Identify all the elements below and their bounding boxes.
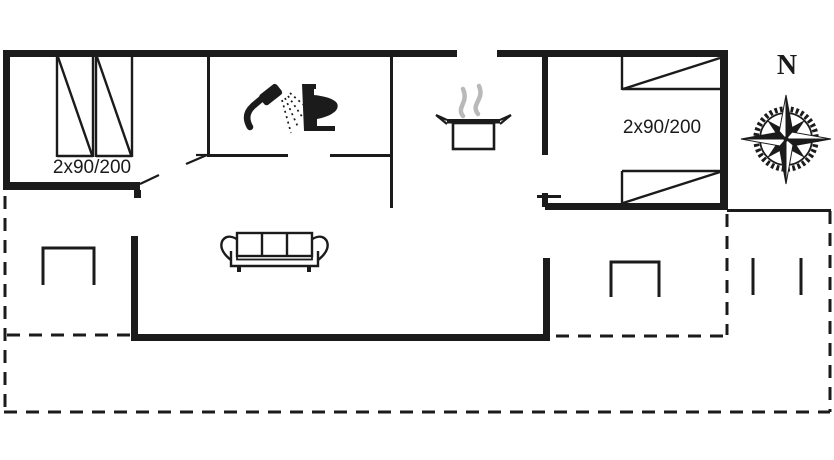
door-swings [140, 155, 209, 184]
wall-right [720, 50, 728, 210]
floor-plan-canvas [0, 0, 834, 460]
cooking-pot-icon [436, 86, 511, 149]
terrace-outline [4, 196, 830, 412]
bed-icon-left-pair [57, 56, 132, 157]
bed-diagonal [97, 57, 131, 155]
terrace-table-icon [43, 248, 94, 285]
wall-bedroom-left-bottom [3, 182, 140, 190]
wall-door-jamb-tick [134, 190, 141, 198]
wall-kitchen-bedroom-partition [542, 53, 548, 155]
compass-rose-icon [741, 95, 831, 184]
sofa-icon [221, 233, 327, 272]
terrace-table-icon [611, 262, 659, 297]
bed-diagonal [623, 172, 720, 203]
wall-living-left [131, 236, 138, 341]
wall-bathroom-bottom-right [330, 154, 392, 157]
terrace-furniture [43, 248, 801, 297]
bed-diagonal [623, 58, 720, 89]
bed-diagonal [58, 57, 92, 155]
shower-spray [282, 93, 306, 133]
wall-door-threshold [537, 195, 561, 198]
shower-icon [247, 83, 306, 133]
wall-left [3, 50, 10, 188]
exterior-walls [3, 50, 728, 341]
wall-top-right [497, 50, 728, 57]
wall-bathroom-bottom-left [207, 154, 288, 157]
wall-living-bottom [131, 334, 550, 341]
wall-bathroom-left [207, 53, 210, 155]
compass-north-label: N [768, 50, 806, 82]
wall-bathroom-right [390, 53, 393, 208]
floor-plan: 2x90/200 2x90/200 N [0, 0, 834, 460]
wall-bedroom-right-bottom [545, 203, 728, 210]
steam-icon [461, 89, 465, 116]
bedroom-left-bed-label: 2x90/200 [36, 157, 148, 179]
toilet-icon [302, 84, 338, 131]
interior-walls [207, 53, 831, 212]
wall-top-left [3, 50, 457, 57]
door-swing-bathroom [186, 155, 207, 164]
wall-living-right [543, 258, 550, 341]
terrace-edge-top-right [727, 209, 831, 212]
bedroom-right-bed-label: 2x90/200 [606, 117, 718, 139]
steam-icon [476, 86, 481, 114]
